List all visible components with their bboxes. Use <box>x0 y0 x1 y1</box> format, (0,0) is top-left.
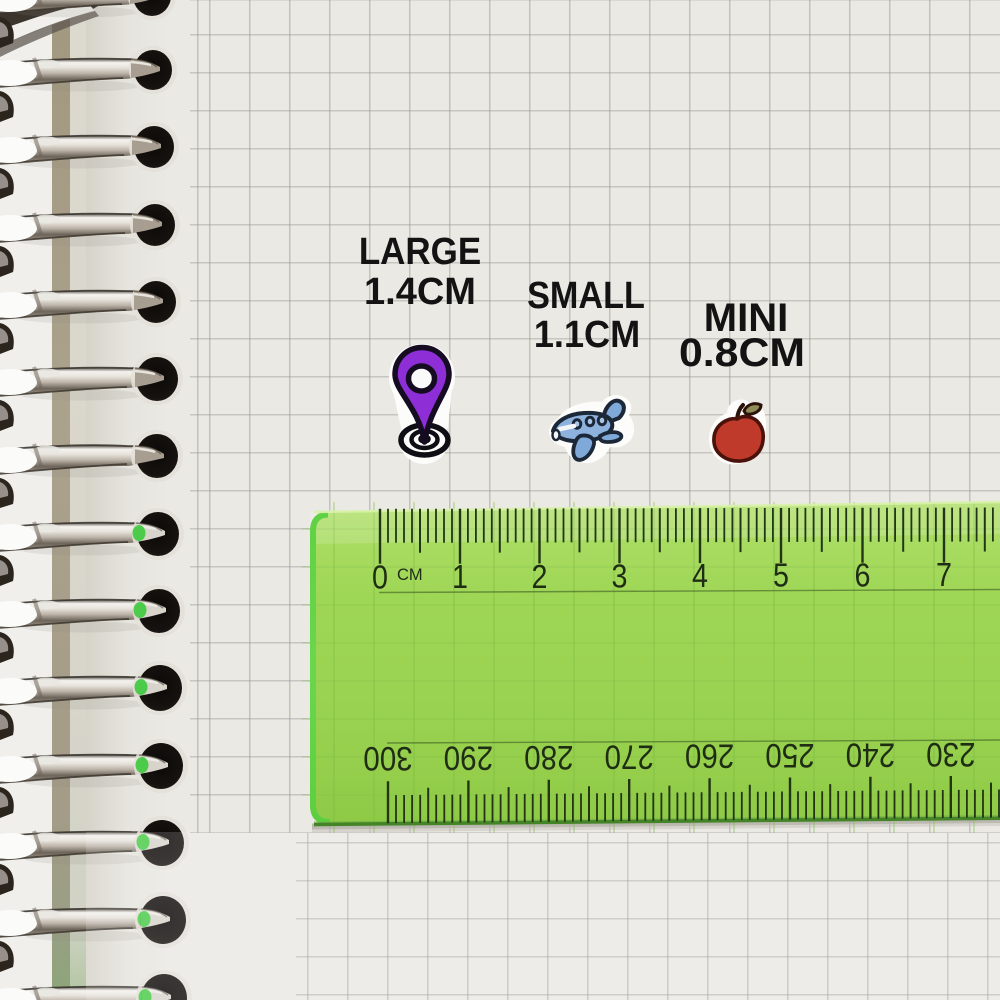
svg-text:1: 1 <box>452 558 468 595</box>
svg-text:290: 290 <box>444 739 493 777</box>
svg-text:4: 4 <box>692 557 708 594</box>
svg-text:260: 260 <box>685 737 734 775</box>
svg-text:3: 3 <box>612 558 628 595</box>
svg-text:7: 7 <box>936 556 952 593</box>
svg-text:300: 300 <box>363 740 412 778</box>
svg-text:2: 2 <box>532 558 548 595</box>
svg-text:270: 270 <box>605 738 654 776</box>
svg-text:5: 5 <box>773 557 789 594</box>
svg-text:240: 240 <box>846 736 895 774</box>
svg-text:0: 0 <box>372 559 388 596</box>
svg-text:250: 250 <box>765 737 814 775</box>
svg-text:230: 230 <box>926 736 975 774</box>
svg-text:280: 280 <box>524 738 573 776</box>
svg-text:CM: CM <box>397 566 423 584</box>
svg-text:6: 6 <box>855 556 871 593</box>
